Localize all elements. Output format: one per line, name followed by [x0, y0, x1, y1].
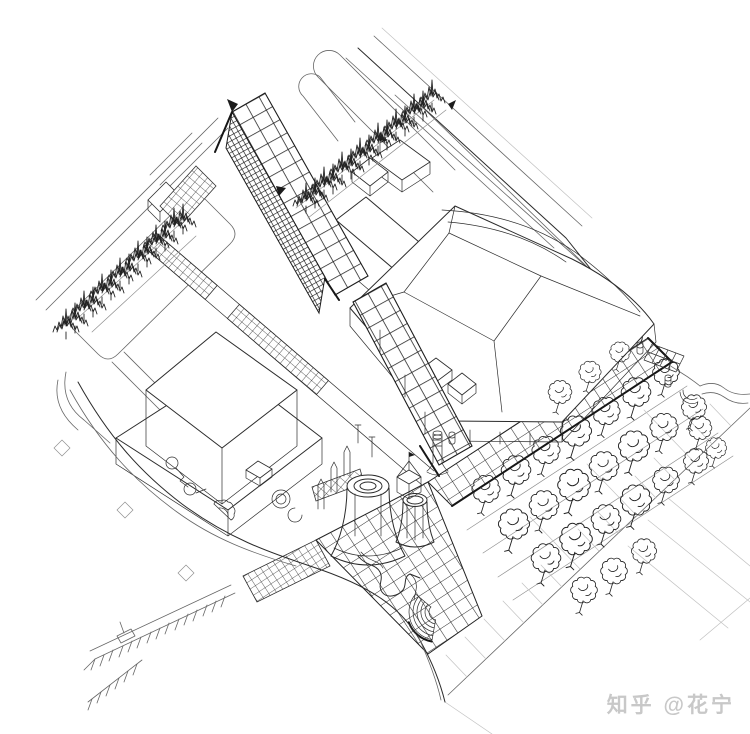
site-axonometric-drawing: 知乎 @花宁: [0, 0, 750, 734]
parking-lot: [84, 585, 235, 710]
watermark-text: 知乎 @花宁: [607, 693, 735, 717]
